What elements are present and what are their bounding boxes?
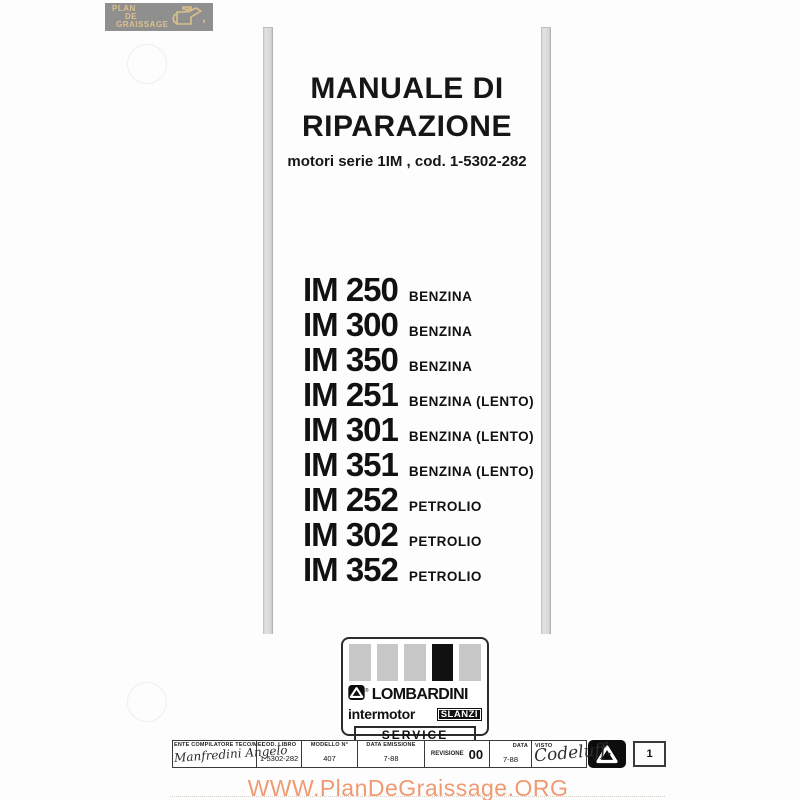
title-block: MANUALE DI RIPARAZIONE motori serie 1IM … (273, 70, 541, 170)
binding-bar-right (541, 27, 551, 634)
cell-modello: MODELLO N° 407 (302, 741, 358, 767)
plan-de-graissage-badge: PLAN DE GRAISSAGE (105, 3, 213, 31)
brand-color-bars (349, 644, 481, 681)
brand-row: ® LOMBARDINI (348, 685, 482, 705)
cell-visto: VISTO Codeluff. (532, 741, 586, 767)
binding-bar-left (263, 27, 273, 634)
slanzi-label: SLANZI (437, 708, 482, 721)
cell-ente-compilatore: ENTE COMPILATORE TECO/MEL Manfredini Ang… (173, 741, 257, 767)
brand-bar (432, 644, 454, 681)
scanned-manual-cover: PLAN DE GRAISSAGE MANUALE DI RIPARAZIONE… (0, 0, 800, 800)
lombardini-triangle-icon (348, 685, 365, 705)
model-name: IM 300 (303, 306, 398, 344)
cell-data: DATA 7-88 (490, 741, 532, 767)
badge-line-3: GRAISSAGE (116, 21, 169, 29)
model-row: IM 302 PETROLIO (303, 516, 534, 551)
lombardini-brand-block: ® LOMBARDINI intermotor SLANZI SERVICE (341, 637, 489, 736)
sub-brand-row: intermotor SLANZI (348, 706, 482, 722)
model-fuel: BENZINA (LENTO) (409, 429, 534, 444)
model-name: IM 352 (303, 551, 398, 589)
page-subtitle: motori serie 1IM , cod. 1-5302-282 (273, 153, 541, 170)
modello-label: MODELLO N° (302, 742, 357, 748)
model-row: IM 251 BENZINA (LENTO) (303, 376, 534, 411)
revisione-label: REVISIONE (431, 751, 464, 757)
model-fuel: PETROLIO (409, 569, 482, 584)
engine-model-list: IM 250 BENZINA IM 300 BENZINA IM 350 BEN… (303, 271, 534, 586)
page-title-line-1: MANUALE DI (273, 70, 541, 108)
cod-libro-value: 1-5302-282 (257, 754, 301, 763)
model-fuel: BENZINA (409, 359, 473, 374)
cell-data-emissione: DATA EMISSIONE 7-88 (358, 741, 425, 767)
model-fuel: BENZINA (LENTO) (409, 464, 534, 479)
model-row: IM 252 PETROLIO (303, 481, 534, 516)
model-name: IM 252 (303, 481, 398, 519)
brand-bar (377, 644, 399, 681)
model-fuel: PETROLIO (409, 499, 482, 514)
punch-hole-top (127, 44, 167, 84)
model-row: IM 250 BENZINA (303, 271, 534, 306)
footer-info-table: ENTE COMPILATORE TECO/MEL Manfredini Ang… (172, 740, 587, 768)
data-value: 7-88 (490, 755, 531, 764)
model-name: IM 351 (303, 446, 398, 484)
model-name: IM 302 (303, 516, 398, 554)
brand-bar (349, 644, 371, 681)
data-emissione-value: 7-88 (358, 754, 424, 763)
cod-libro-label: COD. LIBRO (257, 742, 301, 748)
model-name: IM 350 (303, 341, 398, 379)
model-row: IM 350 BENZINA (303, 341, 534, 376)
page-title-line-2: RIPARAZIONE (273, 108, 541, 146)
page-number-box: 1 (633, 741, 666, 767)
badge-text: PLAN DE GRAISSAGE (109, 5, 169, 29)
modello-value: 407 (302, 754, 357, 763)
cell-revisione: REVISIONE 00 (425, 741, 490, 767)
registered-mark: ® (365, 688, 369, 694)
model-row: IM 351 BENZINA (LENTO) (303, 446, 534, 481)
model-fuel: BENZINA (409, 324, 473, 339)
model-row: IM 300 BENZINA (303, 306, 534, 341)
model-fuel: PETROLIO (409, 534, 482, 549)
cell-cod-libro: COD. LIBRO 1-5302-282 (257, 741, 302, 767)
oil-can-icon (169, 4, 209, 31)
intermotor-label: intermotor (348, 706, 415, 722)
model-row: IM 301 BENZINA (LENTO) (303, 411, 534, 446)
model-fuel: BENZINA (409, 289, 473, 304)
data-label: DATA (513, 743, 528, 749)
punch-hole-bottom (127, 682, 167, 722)
brand-name: LOMBARDINI (372, 686, 468, 704)
model-name: IM 251 (303, 376, 398, 414)
dotted-rule (170, 796, 665, 797)
brand-bar (459, 644, 481, 681)
model-name: IM 250 (303, 271, 398, 309)
badge-line-1: PLAN (112, 5, 169, 13)
model-row: IM 352 PETROLIO (303, 551, 534, 586)
revisione-value: 00 (469, 747, 483, 762)
data-emissione-label: DATA EMISSIONE (358, 742, 424, 748)
model-name: IM 301 (303, 411, 398, 449)
brand-bar (404, 644, 426, 681)
model-fuel: BENZINA (LENTO) (409, 394, 534, 409)
